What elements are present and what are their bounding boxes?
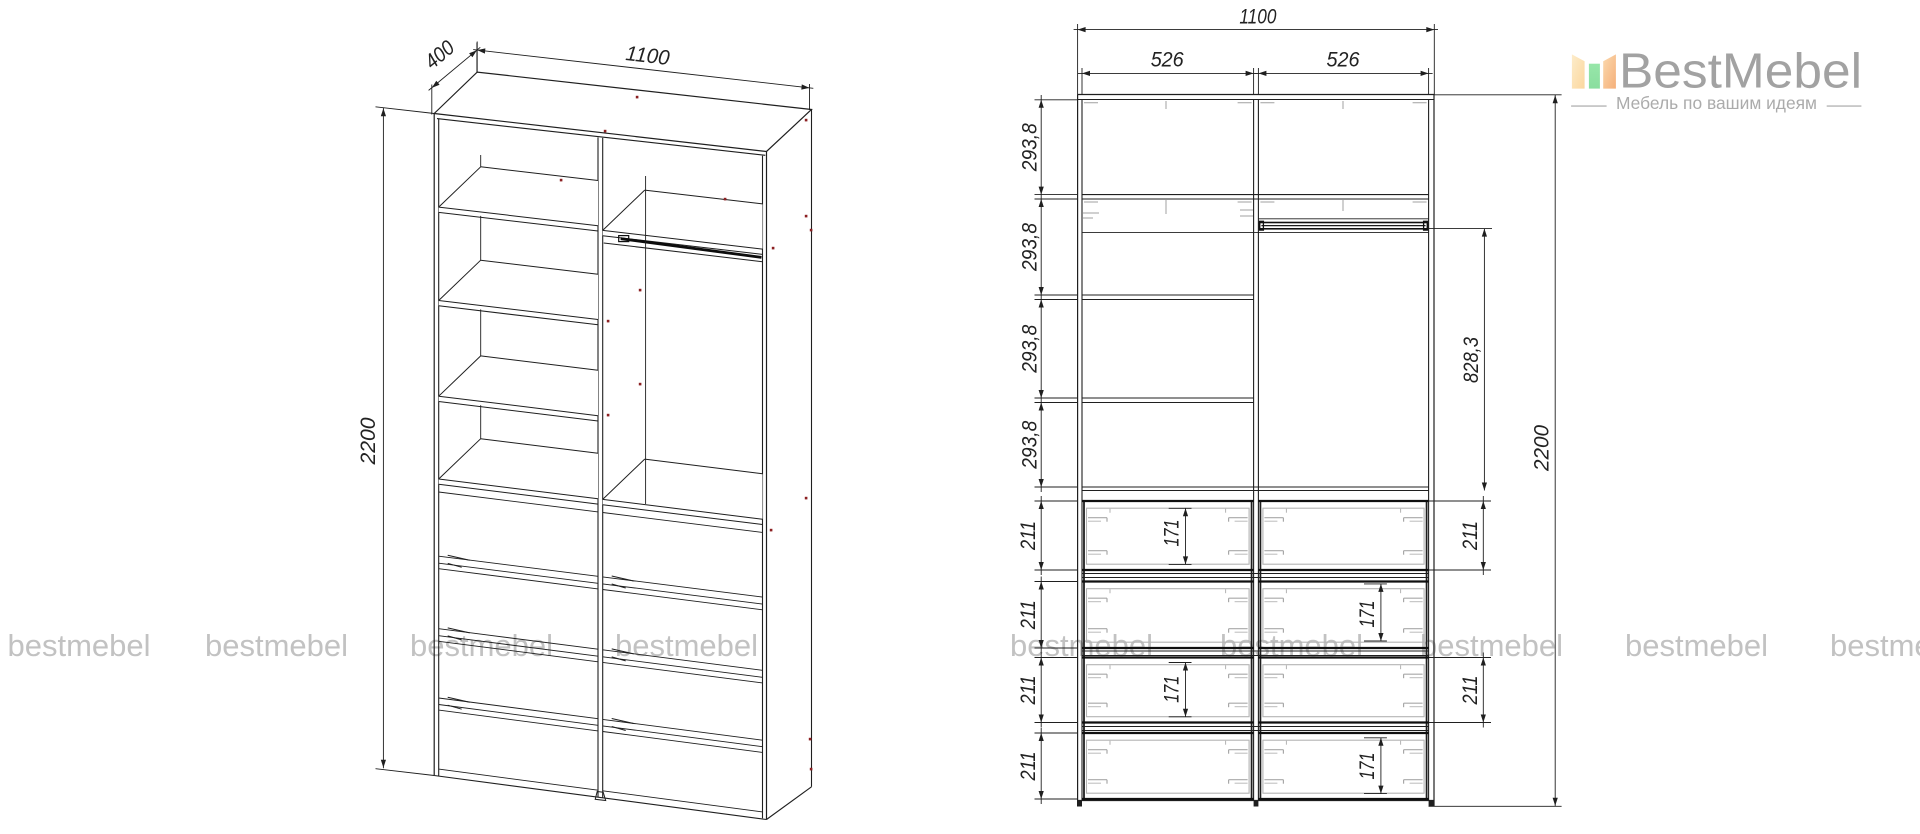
svg-text:171: 171 xyxy=(1161,676,1184,703)
svg-text:211: 211 xyxy=(1017,676,1040,706)
svg-text:171: 171 xyxy=(1356,601,1379,628)
svg-text:2200: 2200 xyxy=(357,417,380,465)
svg-text:bestmebel: bestmebel xyxy=(1830,628,1920,663)
svg-text:211: 211 xyxy=(1459,521,1482,551)
svg-text:BestMebel: BestMebel xyxy=(1619,44,1862,98)
svg-text:293,8: 293,8 xyxy=(1019,420,1042,469)
svg-text:1100: 1100 xyxy=(1239,5,1276,28)
svg-text:293,8: 293,8 xyxy=(1019,223,1042,272)
svg-text:bestmebel: bestmebel xyxy=(205,628,348,663)
svg-text:2200: 2200 xyxy=(1531,425,1554,472)
svg-text:526: 526 xyxy=(1327,49,1360,72)
svg-text:293,8: 293,8 xyxy=(1019,123,1042,172)
svg-text:211: 211 xyxy=(1459,676,1482,706)
svg-text:bestmebel: bestmebel xyxy=(1625,628,1768,663)
svg-text:171: 171 xyxy=(1356,753,1379,780)
svg-text:211: 211 xyxy=(1017,752,1040,782)
svg-text:bestmebel: bestmebel xyxy=(410,628,553,663)
svg-text:211: 211 xyxy=(1017,600,1040,630)
svg-text:526: 526 xyxy=(1151,49,1184,72)
svg-text:bestmebel: bestmebel xyxy=(615,628,758,663)
svg-text:293,8: 293,8 xyxy=(1019,324,1042,373)
svg-text:211: 211 xyxy=(1017,521,1040,551)
svg-text:bestmebel: bestmebel xyxy=(8,628,151,663)
svg-text:171: 171 xyxy=(1161,520,1184,547)
svg-text:Мебель по вашим идеям: Мебель по вашим идеям xyxy=(1616,93,1817,113)
svg-text:828,3: 828,3 xyxy=(1460,337,1483,383)
